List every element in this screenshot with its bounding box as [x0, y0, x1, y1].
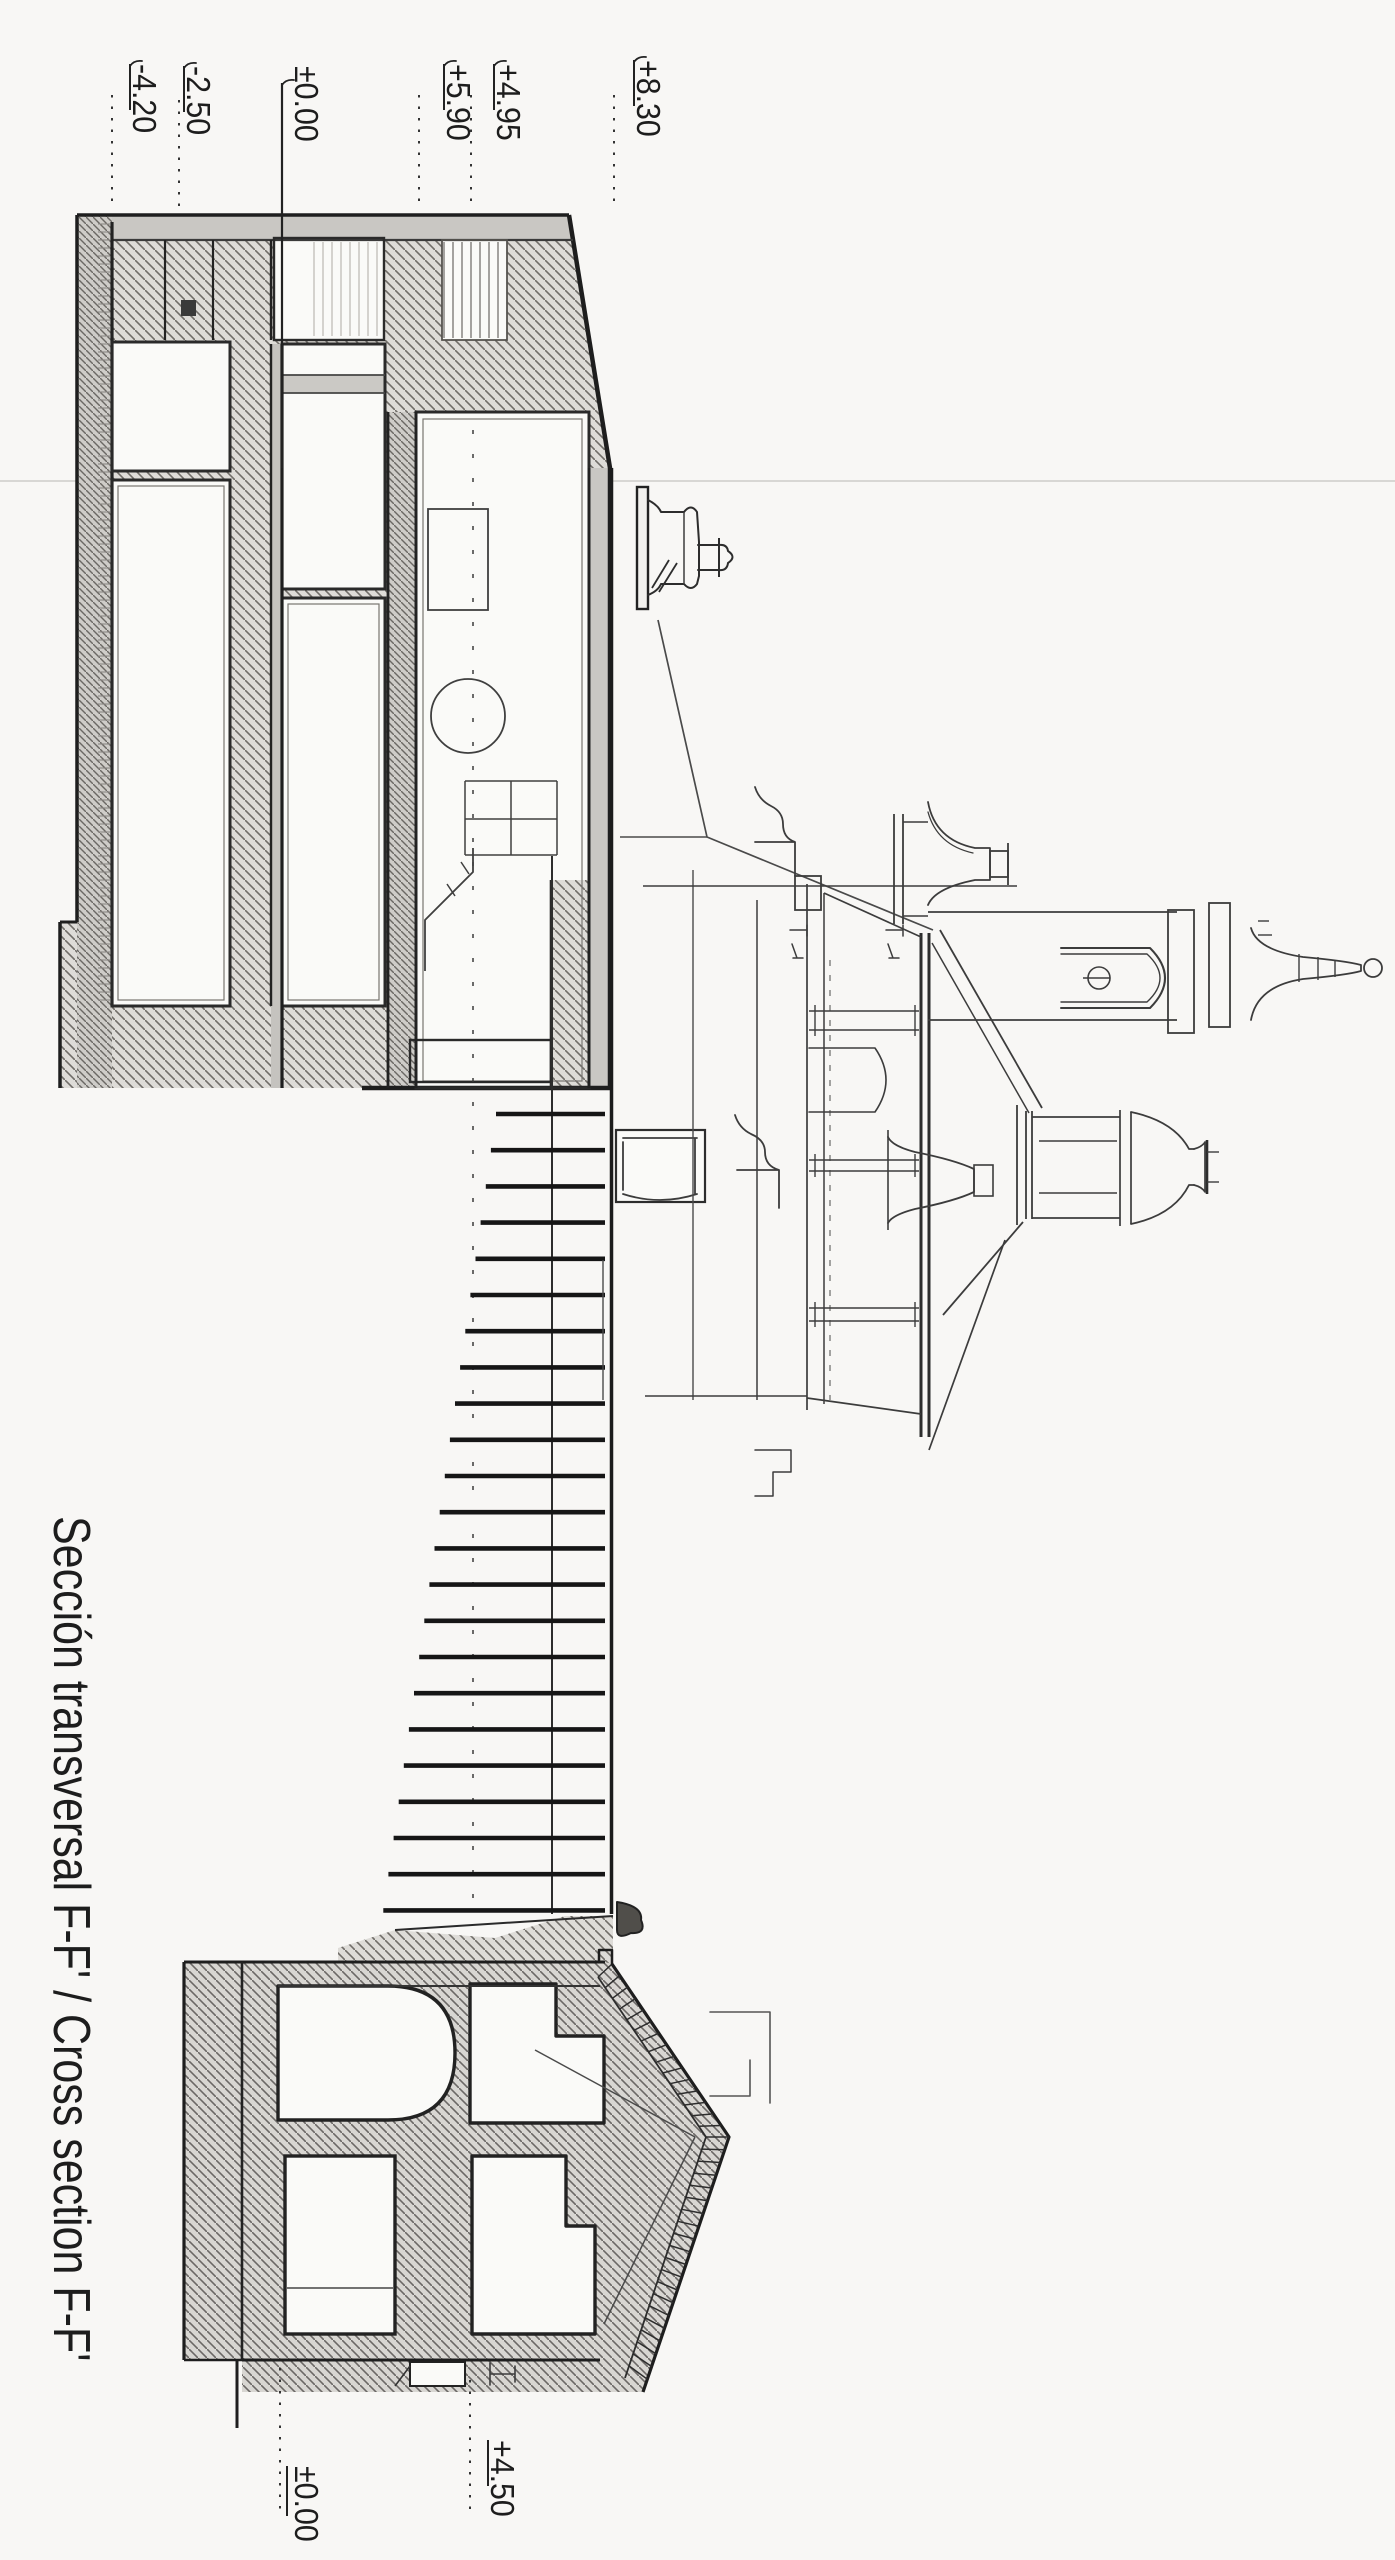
svg-text:+8.30: +8.30 — [630, 60, 667, 137]
svg-text:+4.95: +4.95 — [490, 64, 527, 141]
svg-text:±0.00: ±0.00 — [288, 2466, 325, 2542]
svg-text:+4.50: +4.50 — [484, 2440, 521, 2517]
svg-text:±0.00: ±0.00 — [288, 66, 325, 142]
svg-text:-4.20: -4.20 — [126, 64, 163, 133]
svg-text:Sección transversal F-F' / Cro: Sección transversal F-F' / Cross section… — [42, 1516, 100, 2361]
svg-text:+5.90: +5.90 — [440, 64, 477, 141]
svg-text:-2.50: -2.50 — [180, 66, 217, 135]
